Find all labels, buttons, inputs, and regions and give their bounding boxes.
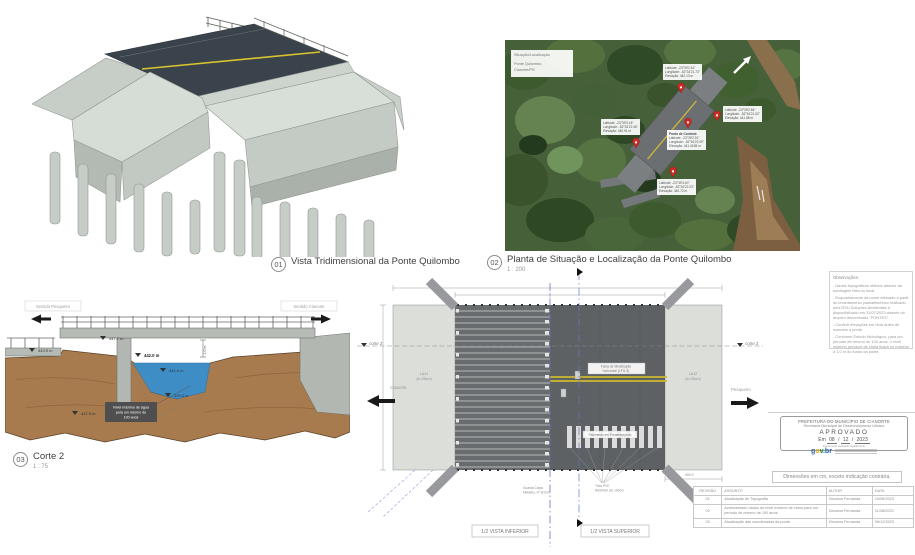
note-item: - Conferir elevações em obra antes de ex… [833, 322, 909, 332]
note-item: - Enquadramento da ponte efetuado a part… [833, 295, 909, 320]
dim-1m: 1.0 m [200, 340, 207, 357]
vista-boxes: 1/2 VISTA INFERIOR 1/2 VISTA SUPERIOR [472, 525, 649, 537]
tubo-l2: Ø100mm a/c 100cm [595, 489, 624, 493]
arrow-left-icon [367, 395, 395, 407]
corte2-marker-right [737, 343, 743, 347]
govbr-logo: gov.br [811, 448, 832, 455]
tubo-l1: Tubo PVC [595, 484, 610, 488]
flood-note-l3: 100 anos [124, 416, 139, 420]
aerial-info-box: Situação/Localização Ponte Quilombo, Cia… [511, 50, 573, 77]
dimensions-note: Dimensões em cm, exceto indicação contrá… [772, 471, 902, 483]
3d-bridge-view [2, 2, 432, 257]
bottom-notes: Tubo PVC Ø100mm a/c 100cm Guarda Corpo M… [523, 484, 624, 495]
revision-row: 02 Acrescentado dados do nível máximo de… [694, 504, 914, 518]
slab-right-label2: (e=25cm) [685, 377, 700, 381]
revision-row: 03 Atualização das coordenadas da ponte.… [694, 518, 914, 527]
sentido-cianorte-label: Sentido Cianorte [293, 304, 325, 309]
view03-number: 03 [13, 452, 28, 467]
view03-title: Corte 2 [33, 452, 64, 462]
stamp-approved: APROVADO [781, 429, 907, 436]
corte2-label-left: corte 2 [369, 341, 383, 346]
slab-left-label2: (e=25cm) [416, 377, 431, 381]
view02-title: Planta de Situação e Localização da Pont… [507, 255, 731, 265]
drainage-lines [367, 470, 433, 517]
elev-water: 441.0 m [169, 368, 184, 373]
faixa-l2: horizontal (LFO-3) [603, 369, 630, 373]
direction-labels: Sentido Pesqueiro Sentido Cianorte [25, 301, 337, 324]
pin-label-south: Latitude: -23°39'3.40" Longitude: -52°34… [657, 179, 696, 195]
caption-view03: 03 Corte 2 1 : 75 [13, 452, 64, 470]
stamp-year: 2023 [855, 437, 870, 444]
elev-pile: 437.9 m [81, 411, 96, 416]
col-autor: AUTOR [826, 487, 872, 496]
guarda-l1: Guarda Corpo [523, 486, 543, 490]
vista-superior-label: 1/2 VISTA SUPERIOR [590, 529, 640, 535]
pavimento-text: Pavimento em Paralelepípedo [589, 433, 632, 437]
revision-header-row: REVISÃO ASSUNTO AUTOR DATA [694, 487, 914, 496]
col-revisao: REVISÃO [694, 487, 722, 496]
note-item: - Dados topográficos obtidos através da … [833, 283, 909, 293]
slab-left-label1: LAJ1 [420, 372, 428, 376]
arrow-left-icon [31, 315, 51, 324]
elev-bed: 439.3 m [174, 393, 189, 398]
approval-stamp: PREFEITURA DO MUNICÍPIO DE CIANORTE Secr… [780, 416, 908, 451]
faixa-l1: Faixa de Sinalização [601, 365, 632, 369]
aerial-photo: Situação/Localização Ponte Quilombo, Cia… [505, 40, 800, 251]
notes-title: Observações: [833, 275, 909, 280]
note-item: - Conforme Estudo Hidrológico, para um p… [833, 334, 909, 354]
pin-label-west: Latitude: -23°39'3.18" Longitude: -52°34… [601, 119, 640, 135]
stamp-signed-note: Documento assinado digitalmente [781, 444, 907, 448]
vista-inferior-label: 1/2 VISTA INFERIOR [481, 529, 529, 535]
road-marker-2 [561, 389, 566, 397]
drawing-sheet: 01 Vista Tridimensional da Ponte Quilomb… [0, 0, 915, 555]
pavimento-label: Pavimento em Paralelepípedo [583, 431, 637, 438]
corte-section: 447.7 m 443.9 m 442.0 m 441.0 m 439.3 m … [5, 300, 350, 448]
col-data: DATA [872, 487, 913, 496]
plan-dir-right-label: Pesqueiro [731, 387, 751, 392]
slab-right [665, 305, 722, 470]
slab-right-label1: LAJ2 [689, 372, 697, 376]
signature-micro-text [835, 449, 877, 455]
deck-vista-inferior [455, 305, 550, 470]
dim-1m-label: 1.0 m [203, 346, 207, 355]
faixa-label: Faixa de Sinalização horizontal (LFO-3) [588, 363, 645, 374]
corte2-marker-left [361, 343, 367, 347]
revision-row: 01 Atualização de Topografia Giovana Fer… [694, 495, 914, 504]
deck [60, 328, 315, 338]
view01-title: Vista Tridimensional da Ponte Quilombo [291, 257, 460, 267]
pin-label-east: Latitude: -23°39'2.84" Longitude: -52°34… [723, 106, 762, 122]
sheet-frame-line [768, 412, 915, 413]
plan-dim-right: 400.0 [685, 473, 694, 477]
caption-view01: 01 Vista Tridimensional da Ponte Quilomb… [271, 257, 460, 272]
stamp-month: 12 [841, 437, 851, 444]
stamp-date: Em 08 / 12 / 2023 [781, 437, 907, 443]
col-assunto: ASSUNTO [722, 487, 826, 496]
revision-table: REVISÃO ASSUNTO AUTOR DATA 01 Atualizaçã… [693, 486, 914, 528]
notes-box: Observações: - Dados topográficos obtido… [829, 271, 913, 349]
plan-dir-left-label: Cianorte [390, 385, 407, 390]
flood-note-l1: Nível máximo de água [113, 406, 149, 410]
guarda-l2: Metálico, h=110cm [523, 491, 550, 495]
stamp-secretaria: Secretaria Municipal de Desenvolvimento … [781, 424, 907, 428]
corte2-label-right: corte 2 [745, 341, 759, 346]
elev-deck: 447.7 m [109, 336, 124, 341]
pin-label-control-point: Ponto de Controle Latitude: -23°39'2.91"… [667, 130, 706, 150]
view02-number: 02 [487, 255, 502, 270]
sentido-pesqueiro-label: Sentido Pesqueiro [36, 304, 71, 309]
aerial-info-line1: Situação/Localização [514, 53, 570, 58]
flood-note-l2: para um retorno de [116, 411, 147, 415]
elev-flood: 442.0 m [144, 353, 160, 358]
stamp-day: 08 [827, 437, 837, 444]
aerial-info-line3: Cianorte/PR [514, 68, 570, 73]
pin-label-north: Latitude: -23°39'2.61" Longitude: -52°34… [663, 64, 702, 80]
view01-number: 01 [271, 257, 286, 272]
elev-approach: 443.9 m [38, 348, 53, 353]
view02-scale: 1 : 200 [507, 267, 731, 273]
caption-view02: 02 Planta de Situação e Localização da P… [487, 255, 731, 273]
arrow-right-icon [731, 397, 759, 409]
plan-direction-right: Pesqueiro [731, 387, 759, 409]
view03-scale: 1 : 75 [33, 464, 64, 470]
